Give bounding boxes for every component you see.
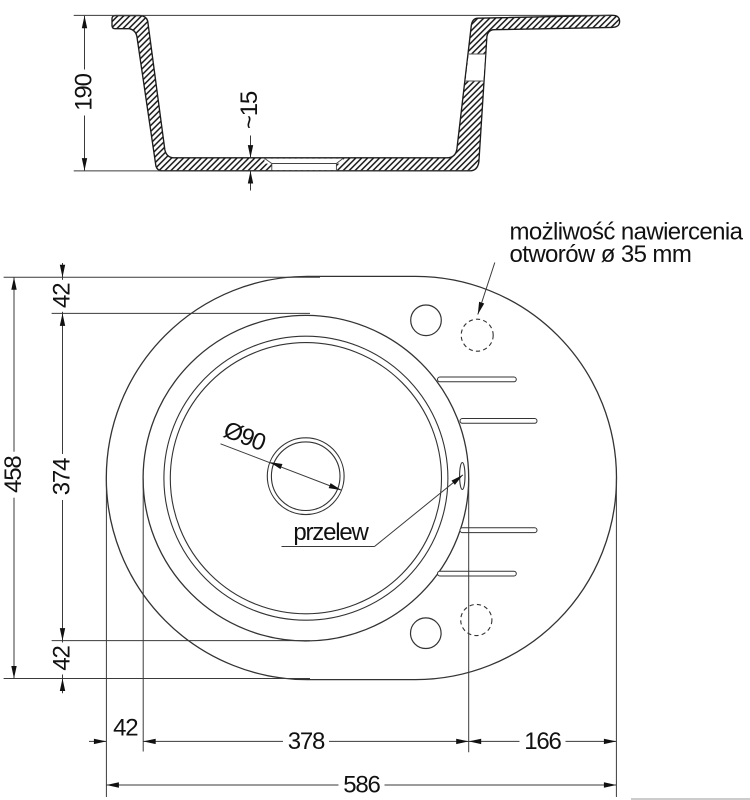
svg-text:42: 42 (49, 283, 76, 308)
svg-text:374: 374 (49, 458, 76, 495)
svg-text:42: 42 (113, 715, 138, 742)
svg-text:458: 458 (0, 456, 27, 493)
svg-text:190: 190 (71, 73, 98, 110)
svg-text:otworów ø 35 mm: otworów ø 35 mm (510, 241, 692, 268)
svg-text:42: 42 (49, 646, 76, 671)
svg-text:166: 166 (524, 728, 561, 755)
svg-text:przelew: przelew (293, 519, 369, 546)
svg-text:378: 378 (288, 728, 325, 755)
svg-text:586: 586 (343, 772, 380, 799)
svg-text:~15: ~15 (236, 91, 263, 129)
